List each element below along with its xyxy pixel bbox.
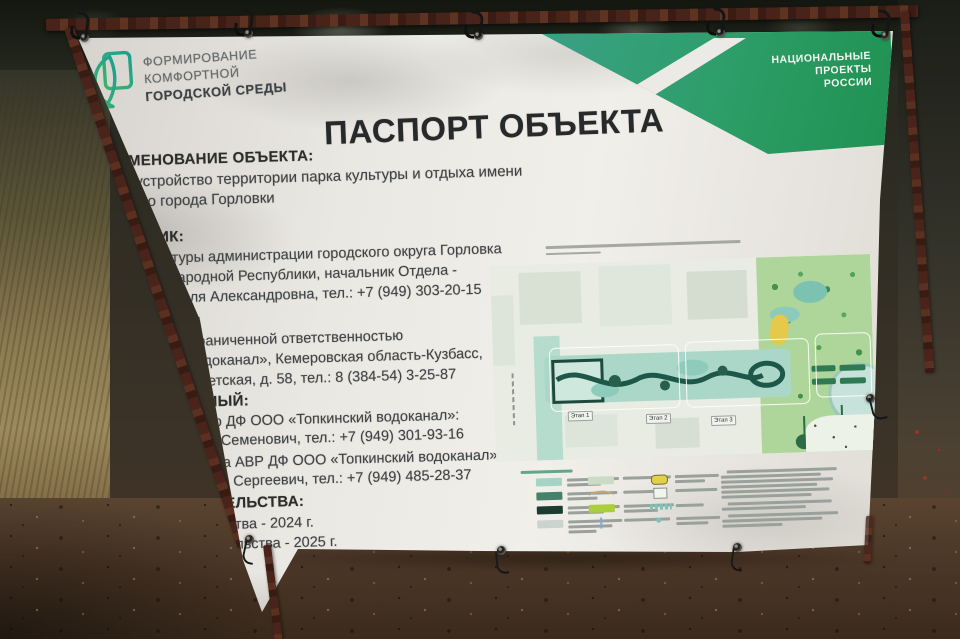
legend-notes-line — [721, 493, 811, 498]
map-stage-label: Этап 2 — [646, 413, 671, 424]
legend-label-placeholder — [624, 517, 670, 521]
red-berries — [905, 420, 960, 510]
legend-label-placeholder — [568, 530, 596, 533]
photo-scene: ФОРМИРОВАНИЕ КОМФОРТНОЙ ГОРОДСКОЙ СРЕДЫ … — [0, 0, 960, 639]
legend-label-placeholder — [675, 488, 717, 492]
map-legend — [482, 454, 884, 543]
map-city-block — [686, 270, 747, 320]
site-plan-subtitle-placeholder — [546, 251, 601, 255]
site-plan-title-placeholder — [546, 240, 741, 249]
legend-label-placeholder — [675, 479, 705, 482]
map-pond — [793, 280, 828, 303]
site-plan: Этап 1 Этап 2 Этап 3 — [475, 230, 884, 542]
map-stage-outline — [814, 332, 872, 398]
legend-swatch — [537, 506, 563, 515]
legend-label-placeholder — [675, 474, 719, 478]
legend-line-symbol — [600, 518, 602, 529]
map-stage-label: Этап 3 — [711, 415, 736, 426]
legend-swatch — [536, 478, 562, 487]
legend-swatch — [536, 492, 562, 501]
program-logo: ФОРМИРОВАНИЕ КОМФОРТНОЙ ГОРОДСКОЙ СРЕДЫ — [88, 36, 322, 112]
dry-grass-background — [0, 70, 110, 570]
legend-notes-line — [721, 487, 829, 493]
legend-dot-symbol — [656, 518, 661, 523]
legend-title-placeholder — [521, 469, 573, 474]
legend-label-placeholder — [568, 519, 622, 523]
legend-pill-symbol — [651, 474, 668, 485]
map-stage-outline — [549, 344, 681, 412]
legend-swatch — [588, 476, 614, 485]
legend-notes-line — [728, 499, 832, 505]
legend-notes-line — [722, 505, 806, 510]
map-city-block — [598, 264, 672, 326]
legend-label-placeholder — [676, 516, 720, 520]
legend-path-symbol — [588, 490, 614, 504]
map-city-block — [491, 295, 515, 366]
map-dotted-plaza — [805, 414, 876, 456]
map-stage-outline — [685, 338, 811, 408]
legend-label-placeholder — [568, 524, 612, 528]
national-projects-text: НАЦИОНАЛЬНЫЕ ПРОЕКТЫ РОССИИ — [772, 50, 873, 93]
legend-dotted-symbol — [650, 503, 672, 510]
map-city-block — [518, 271, 582, 325]
map-stage-label: Этап 1 — [568, 411, 593, 422]
legend-label-placeholder — [676, 503, 704, 506]
legend-swatch — [589, 504, 615, 513]
section-object-name: НАИМЕНОВАНИЕ ОБЪЕКТА: Благоустройство те… — [94, 142, 557, 214]
legend-notes-line — [722, 517, 822, 523]
legend-swatch — [537, 520, 563, 529]
legend-notes-line — [722, 523, 782, 527]
legend-rect-symbol — [653, 487, 667, 498]
legend-label-placeholder — [676, 521, 708, 525]
map-street-label-placeholder — [512, 373, 516, 425]
site-plan-map: Этап 1 Этап 2 Этап 3 — [490, 254, 876, 462]
